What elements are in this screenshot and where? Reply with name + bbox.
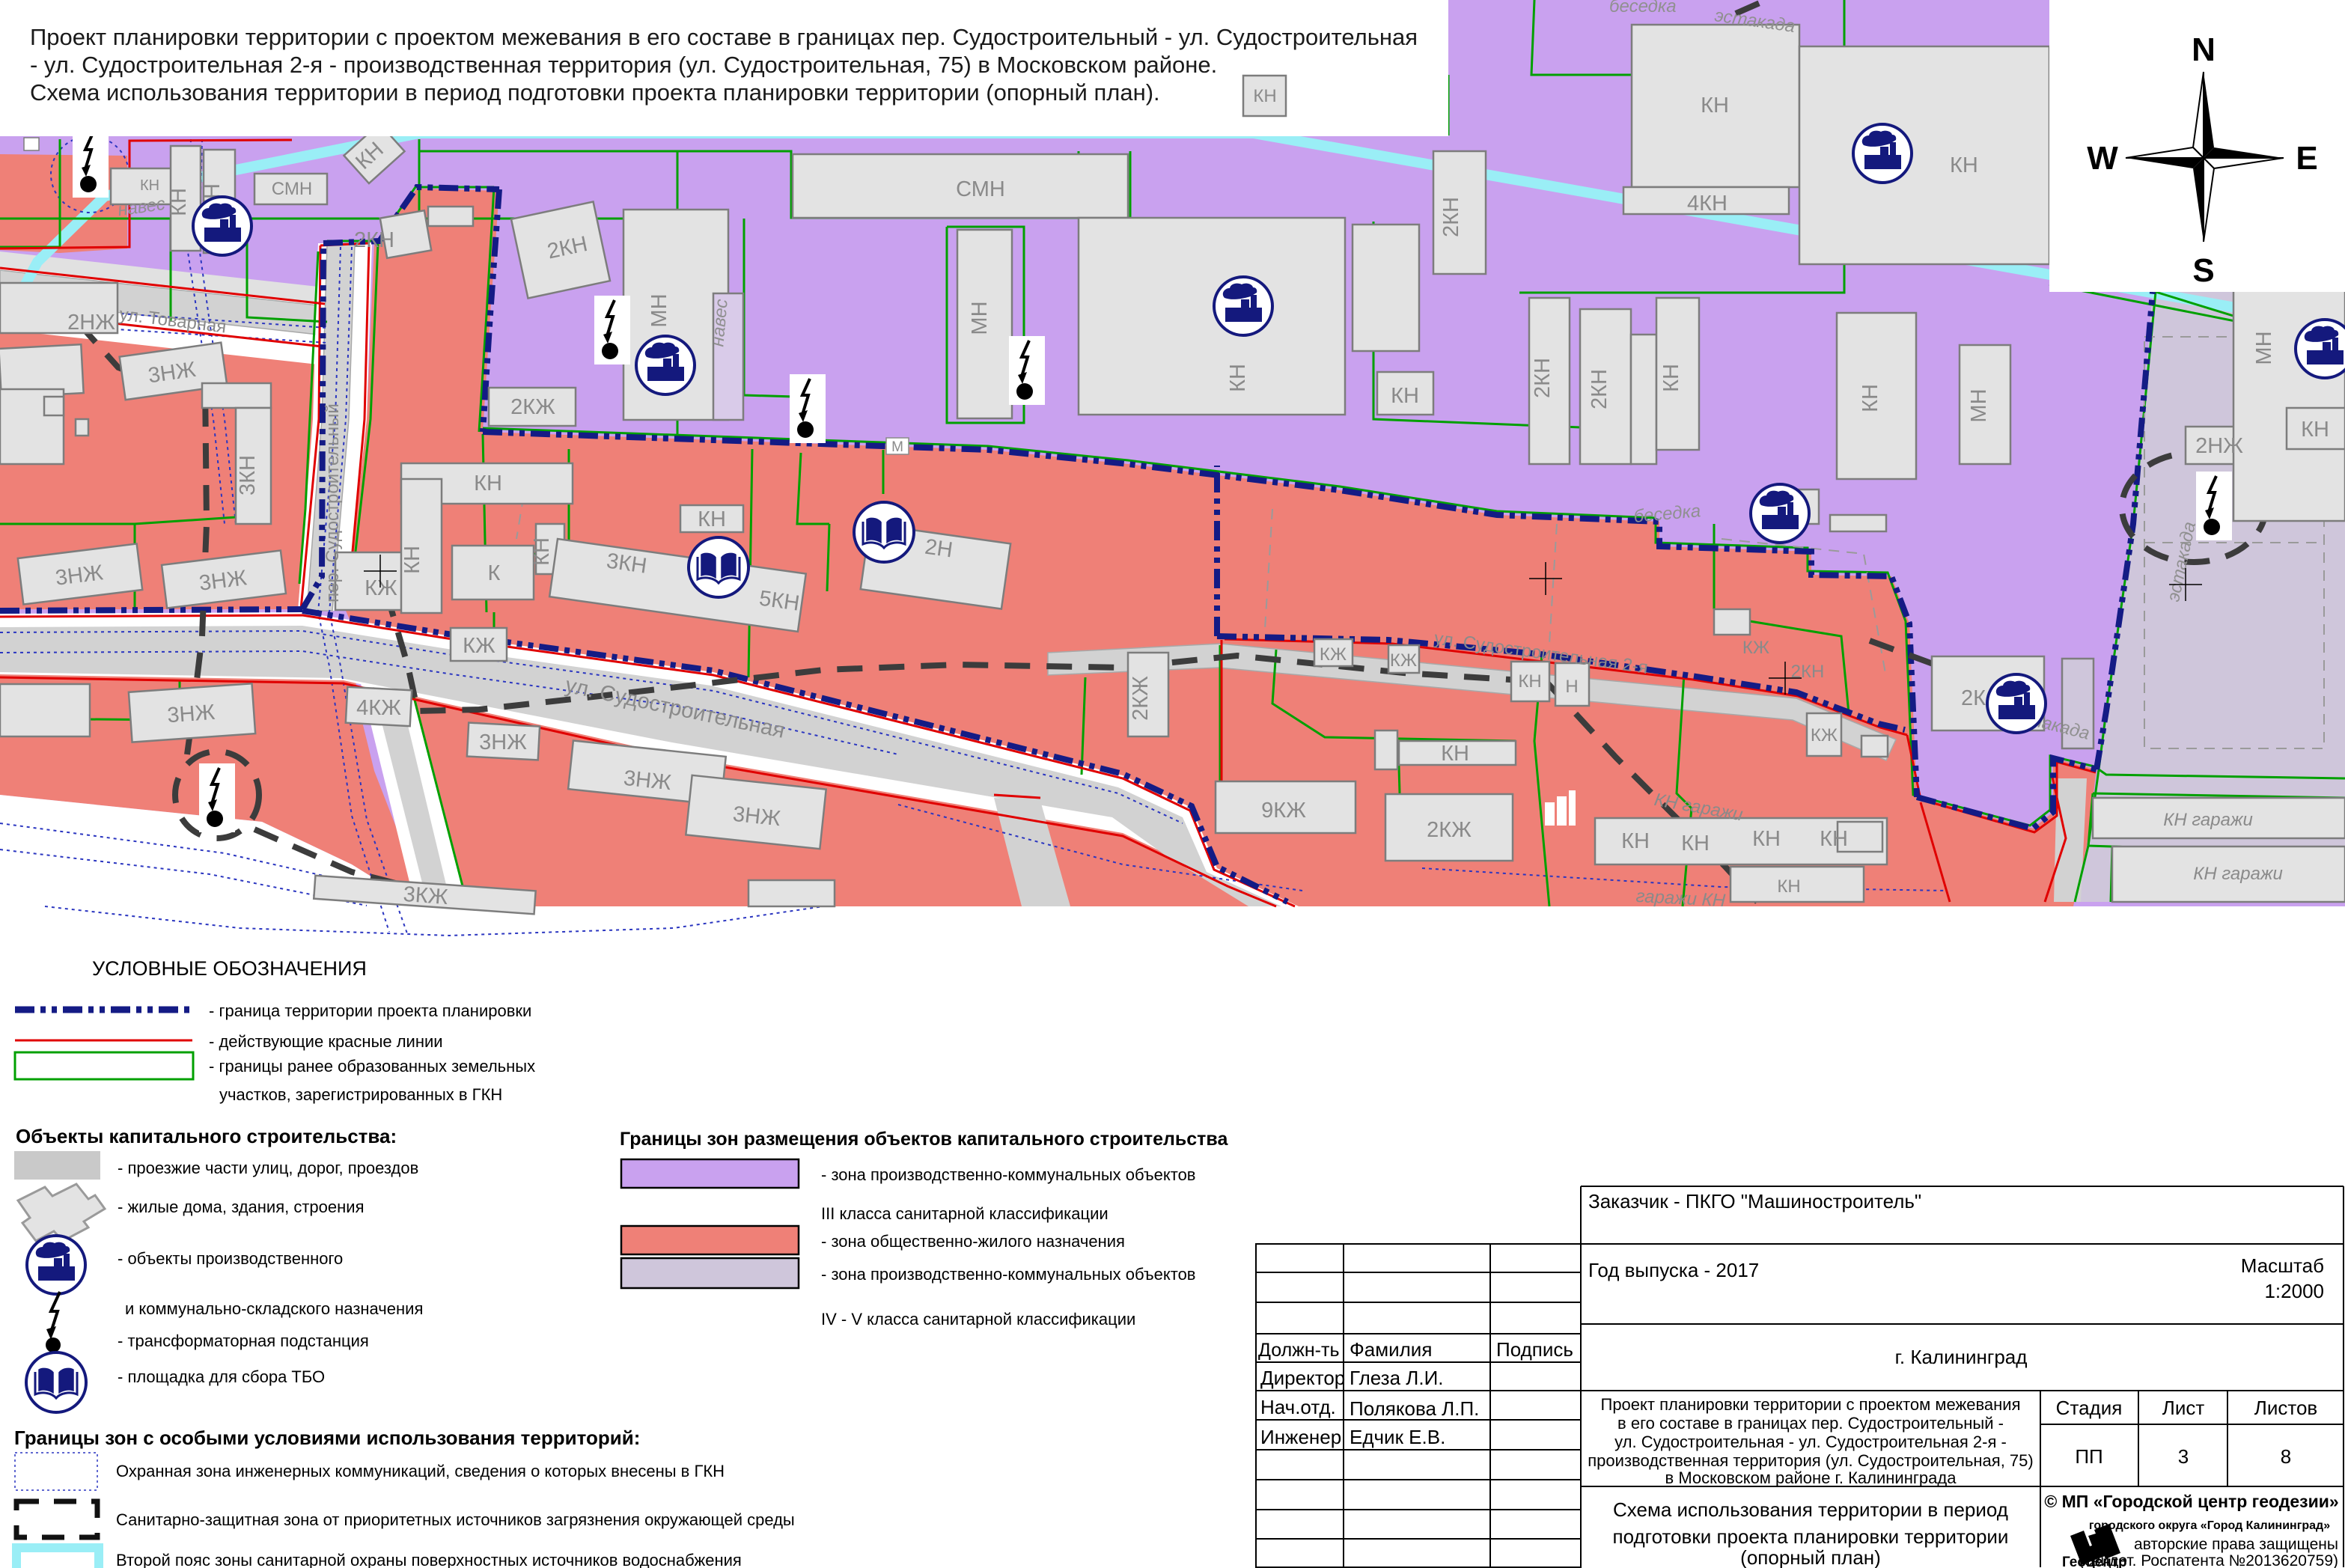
- svg-text:гаражи КН: гаражи КН: [1635, 886, 1727, 911]
- svg-text:- действующие красные линии: - действующие красные линии: [209, 1032, 443, 1051]
- svg-text:Едчик Е.В.: Едчик Е.В.: [1350, 1426, 1445, 1448]
- svg-text:ул. Судостроительная - ул. Суд: ул. Судостроительная - ул. Судостроитель…: [1614, 1433, 2007, 1451]
- svg-text:КЖ: КЖ: [463, 634, 495, 658]
- svg-text:- границы ранее образованных з: - границы ранее образованных земельных: [209, 1057, 535, 1076]
- svg-text:пер. Судостроительный: пер. Судостроительный: [323, 403, 343, 603]
- svg-text:Нач.отд.: Нач.отд.: [1260, 1396, 1336, 1418]
- svg-text:СМН: СМН: [272, 179, 312, 199]
- svg-text:IV - V класса санитарной класс: IV - V класса санитарной классификации: [821, 1310, 1135, 1328]
- svg-text:S: S: [2192, 252, 2214, 289]
- svg-text:8: 8: [2281, 1445, 2291, 1468]
- svg-text:КН: КН: [140, 177, 159, 194]
- svg-text:КН: КН: [1253, 86, 1276, 106]
- svg-text:Заказчик - ПКГО "Машиностроите: Заказчик - ПКГО "Машиностроитель": [1588, 1190, 1921, 1212]
- svg-text:КН: КН: [1226, 364, 1250, 392]
- svg-text:9КЖ: 9КЖ: [1261, 799, 1306, 823]
- svg-text:М: М: [891, 439, 903, 455]
- svg-text:Н: Н: [1565, 677, 1578, 697]
- svg-text:Второй пояс зоны санитарной ох: Второй пояс зоны санитарной охраны повер…: [116, 1551, 742, 1568]
- svg-text:Лист: Лист: [2162, 1397, 2205, 1419]
- svg-text:КН: КН: [1858, 384, 1882, 412]
- svg-text:2КН: 2КН: [1588, 369, 1611, 409]
- svg-text:КН: КН: [2301, 418, 2329, 442]
- svg-text:городского округа «Город Калин: городского округа «Город Калининград»: [2089, 1519, 2330, 1532]
- svg-text:г. Калининград: г. Калининград: [1895, 1346, 2028, 1368]
- svg-text:КН: КН: [1518, 671, 1541, 692]
- svg-text:2КН: 2КН: [354, 228, 394, 252]
- svg-text:КН: КН: [400, 546, 424, 574]
- svg-text:КЖ: КЖ: [1390, 650, 1417, 671]
- svg-text:W: W: [2087, 140, 2118, 177]
- svg-text:- площадка для сбора ТБО: - площадка для сбора ТБО: [118, 1367, 325, 1386]
- svg-text:и коммунально-складского назна: и коммунально-складского назначения: [125, 1299, 423, 1318]
- svg-text:- зона производственно-коммуна: - зона производственно-коммунальных объе…: [821, 1165, 1196, 1184]
- svg-text:подготовки проекта планировки: подготовки проекта планировки территории: [1613, 1525, 2009, 1548]
- svg-text:КЖ: КЖ: [1742, 638, 1769, 658]
- svg-text:КН: КН: [1391, 384, 1419, 408]
- svg-text:КН: КН: [1681, 832, 1710, 855]
- svg-text:беседка: беседка: [1609, 0, 1677, 16]
- svg-text:Директор: Директор: [1260, 1367, 1345, 1389]
- svg-text:Подпись: Подпись: [1496, 1338, 1573, 1361]
- svg-text:3НЖ: 3НЖ: [732, 802, 782, 832]
- svg-text:(опорный план): (опорный план): [1740, 1546, 1881, 1568]
- svg-text:в Московском районе г. Калинин: в Московском районе г. Калининграда: [1665, 1468, 1957, 1487]
- svg-text:КЖ: КЖ: [1811, 725, 1838, 745]
- svg-text:2КЖ: 2КЖ: [1129, 676, 1153, 721]
- svg-text:2К: 2К: [1961, 686, 1986, 710]
- svg-text:Охранная зона инженерных комму: Охранная зона инженерных коммуникаций, с…: [116, 1462, 725, 1480]
- svg-text:навес: навес: [707, 298, 731, 347]
- svg-text:Границы зон с особыми условиям: Границы зон с особыми условиями использо…: [14, 1427, 640, 1449]
- svg-text:Объекты капитального строитель: Объекты капитального строительства:: [16, 1125, 397, 1147]
- svg-text:Листов: Листов: [2254, 1397, 2317, 1419]
- svg-text:участков, зарегистрированных в: участков, зарегистрированных в ГКН: [219, 1085, 502, 1104]
- svg-text:МН: МН: [2252, 331, 2276, 364]
- svg-text:3НЖ: 3НЖ: [479, 730, 527, 754]
- svg-text:КН: КН: [1777, 876, 1800, 897]
- svg-text:СМН: СМН: [956, 177, 1005, 201]
- svg-text:КН гаражи: КН гаражи: [2193, 864, 2283, 884]
- svg-text:КН: КН: [1441, 742, 1469, 766]
- svg-text:УСЛОВНЫЕ ОБОЗНАЧЕНИЯ: УСЛОВНЫЕ ОБОЗНАЧЕНИЯ: [92, 957, 367, 980]
- svg-text:КН гаражи: КН гаражи: [2163, 810, 2253, 830]
- svg-text:КН: КН: [1659, 364, 1683, 392]
- svg-text:КН: КН: [1820, 827, 1848, 851]
- svg-text:Инженер: Инженер: [1260, 1426, 1341, 1448]
- svg-text:III класса санитарной классифи: III класса санитарной классификации: [821, 1204, 1109, 1223]
- svg-text:3НЖ: 3НЖ: [623, 766, 673, 796]
- svg-text:3: 3: [2178, 1445, 2189, 1468]
- svg-text:Масштаб: Масштаб: [2241, 1254, 2324, 1277]
- svg-text:КН: КН: [1950, 153, 1978, 177]
- svg-text:Схема использования территории: Схема использования территории в период …: [30, 79, 1160, 106]
- svg-text:МН: МН: [968, 301, 992, 335]
- svg-text:в его составе в границах пер.: в его составе в границах пер. Судостроит…: [1617, 1414, 2004, 1433]
- svg-text:2Н: 2Н: [924, 535, 954, 563]
- svg-text:КЖ: КЖ: [1320, 644, 1347, 665]
- svg-text:- проезжие части улиц, дорог,: - проезжие части улиц, дорог, проездов: [118, 1159, 418, 1177]
- svg-text:КН: КН: [698, 507, 726, 531]
- svg-text:КН: КН: [1752, 827, 1781, 851]
- svg-text:4КН: 4КН: [1687, 192, 1728, 216]
- svg-text:КЖ: КЖ: [365, 576, 397, 600]
- svg-text:2КЖ: 2КЖ: [510, 395, 555, 419]
- svg-text:КН: КН: [167, 188, 191, 216]
- svg-text:- жилые дома, здания, строения: - жилые дома, здания, строения: [118, 1198, 364, 1216]
- svg-text:Границы зон размещения объекто: Границы зон размещения объектов капиталь…: [620, 1129, 1228, 1150]
- svg-text:3КН: 3КН: [236, 455, 260, 495]
- svg-text:- граница территории проекта п: - граница территории проекта планировки: [209, 1001, 531, 1020]
- svg-text:ПП: ПП: [2075, 1445, 2102, 1468]
- svg-text:Геоцентр: Геоцентр: [2062, 1555, 2127, 1568]
- svg-text:Год выпуска - 2017: Год выпуска - 2017: [1588, 1259, 1759, 1281]
- svg-text:КН: КН: [474, 472, 502, 495]
- svg-text:- объекты производственного: - объекты производственного: [118, 1249, 343, 1268]
- svg-text:- ул. Судостроительная 2-я - п: - ул. Судостроительная 2-я - производств…: [30, 52, 1217, 78]
- svg-text:- трансформаторная подстанция: - трансформаторная подстанция: [118, 1331, 369, 1350]
- svg-text:2КЖ: 2КЖ: [1427, 818, 1472, 842]
- svg-text:Проект планировки территории с: Проект планировки территории с проектом …: [1601, 1395, 2021, 1414]
- svg-text:Полякова Л.П.: Полякова Л.П.: [1350, 1397, 1479, 1420]
- svg-text:КН: КН: [1621, 829, 1650, 853]
- svg-text:N: N: [2192, 31, 2216, 68]
- svg-text:3НЖ: 3НЖ: [166, 701, 216, 727]
- svg-text:2НЖ: 2НЖ: [2195, 434, 2243, 458]
- svg-text:Санитарно-защитная зона от при: Санитарно-защитная зона от приоритетных …: [116, 1510, 795, 1529]
- svg-text:Должн-ть: Должн-ть: [1258, 1340, 1339, 1361]
- svg-text:E: E: [2296, 140, 2317, 177]
- svg-text:- зона производственно-коммуна: - зона производственно-коммунальных объе…: [821, 1265, 1196, 1284]
- svg-text:КН: КН: [530, 537, 554, 566]
- svg-text:1:2000: 1:2000: [2264, 1280, 2324, 1302]
- svg-text:4КЖ: 4КЖ: [356, 696, 401, 720]
- svg-text:Фамилия: Фамилия: [1350, 1338, 1432, 1361]
- svg-text:2КН: 2КН: [1439, 197, 1463, 237]
- svg-text:МН: МН: [647, 293, 671, 327]
- svg-text:- зона общественно-жилого назн: - зона общественно-жилого назначения: [821, 1232, 1125, 1251]
- svg-text:© МП «Городской центр геодезии: © МП «Городской центр геодезии»: [2044, 1492, 2338, 1511]
- svg-text:2НЖ: 2НЖ: [67, 311, 115, 335]
- svg-text:авторские права защищены: авторские права защищены: [2134, 1536, 2338, 1553]
- svg-text:Стадия: Стадия: [2056, 1397, 2123, 1419]
- svg-text:Проект планировки территории с: Проект планировки территории с проектом …: [30, 24, 1418, 50]
- svg-text:2КН: 2КН: [1791, 662, 1825, 682]
- svg-text:2КН: 2КН: [1531, 358, 1555, 398]
- svg-text:производственная территория (у: производственная территория (ул. Судостр…: [1588, 1451, 2033, 1470]
- svg-text:3КЖ: 3КЖ: [403, 882, 449, 909]
- svg-text:КН: КН: [1701, 94, 1729, 118]
- svg-text:Глеза Л.И.: Глеза Л.И.: [1350, 1367, 1443, 1389]
- svg-text:МН: МН: [1967, 388, 1991, 422]
- svg-text:Схема использования территории: Схема использования территории в период: [1613, 1498, 2008, 1521]
- svg-text:К: К: [488, 561, 501, 585]
